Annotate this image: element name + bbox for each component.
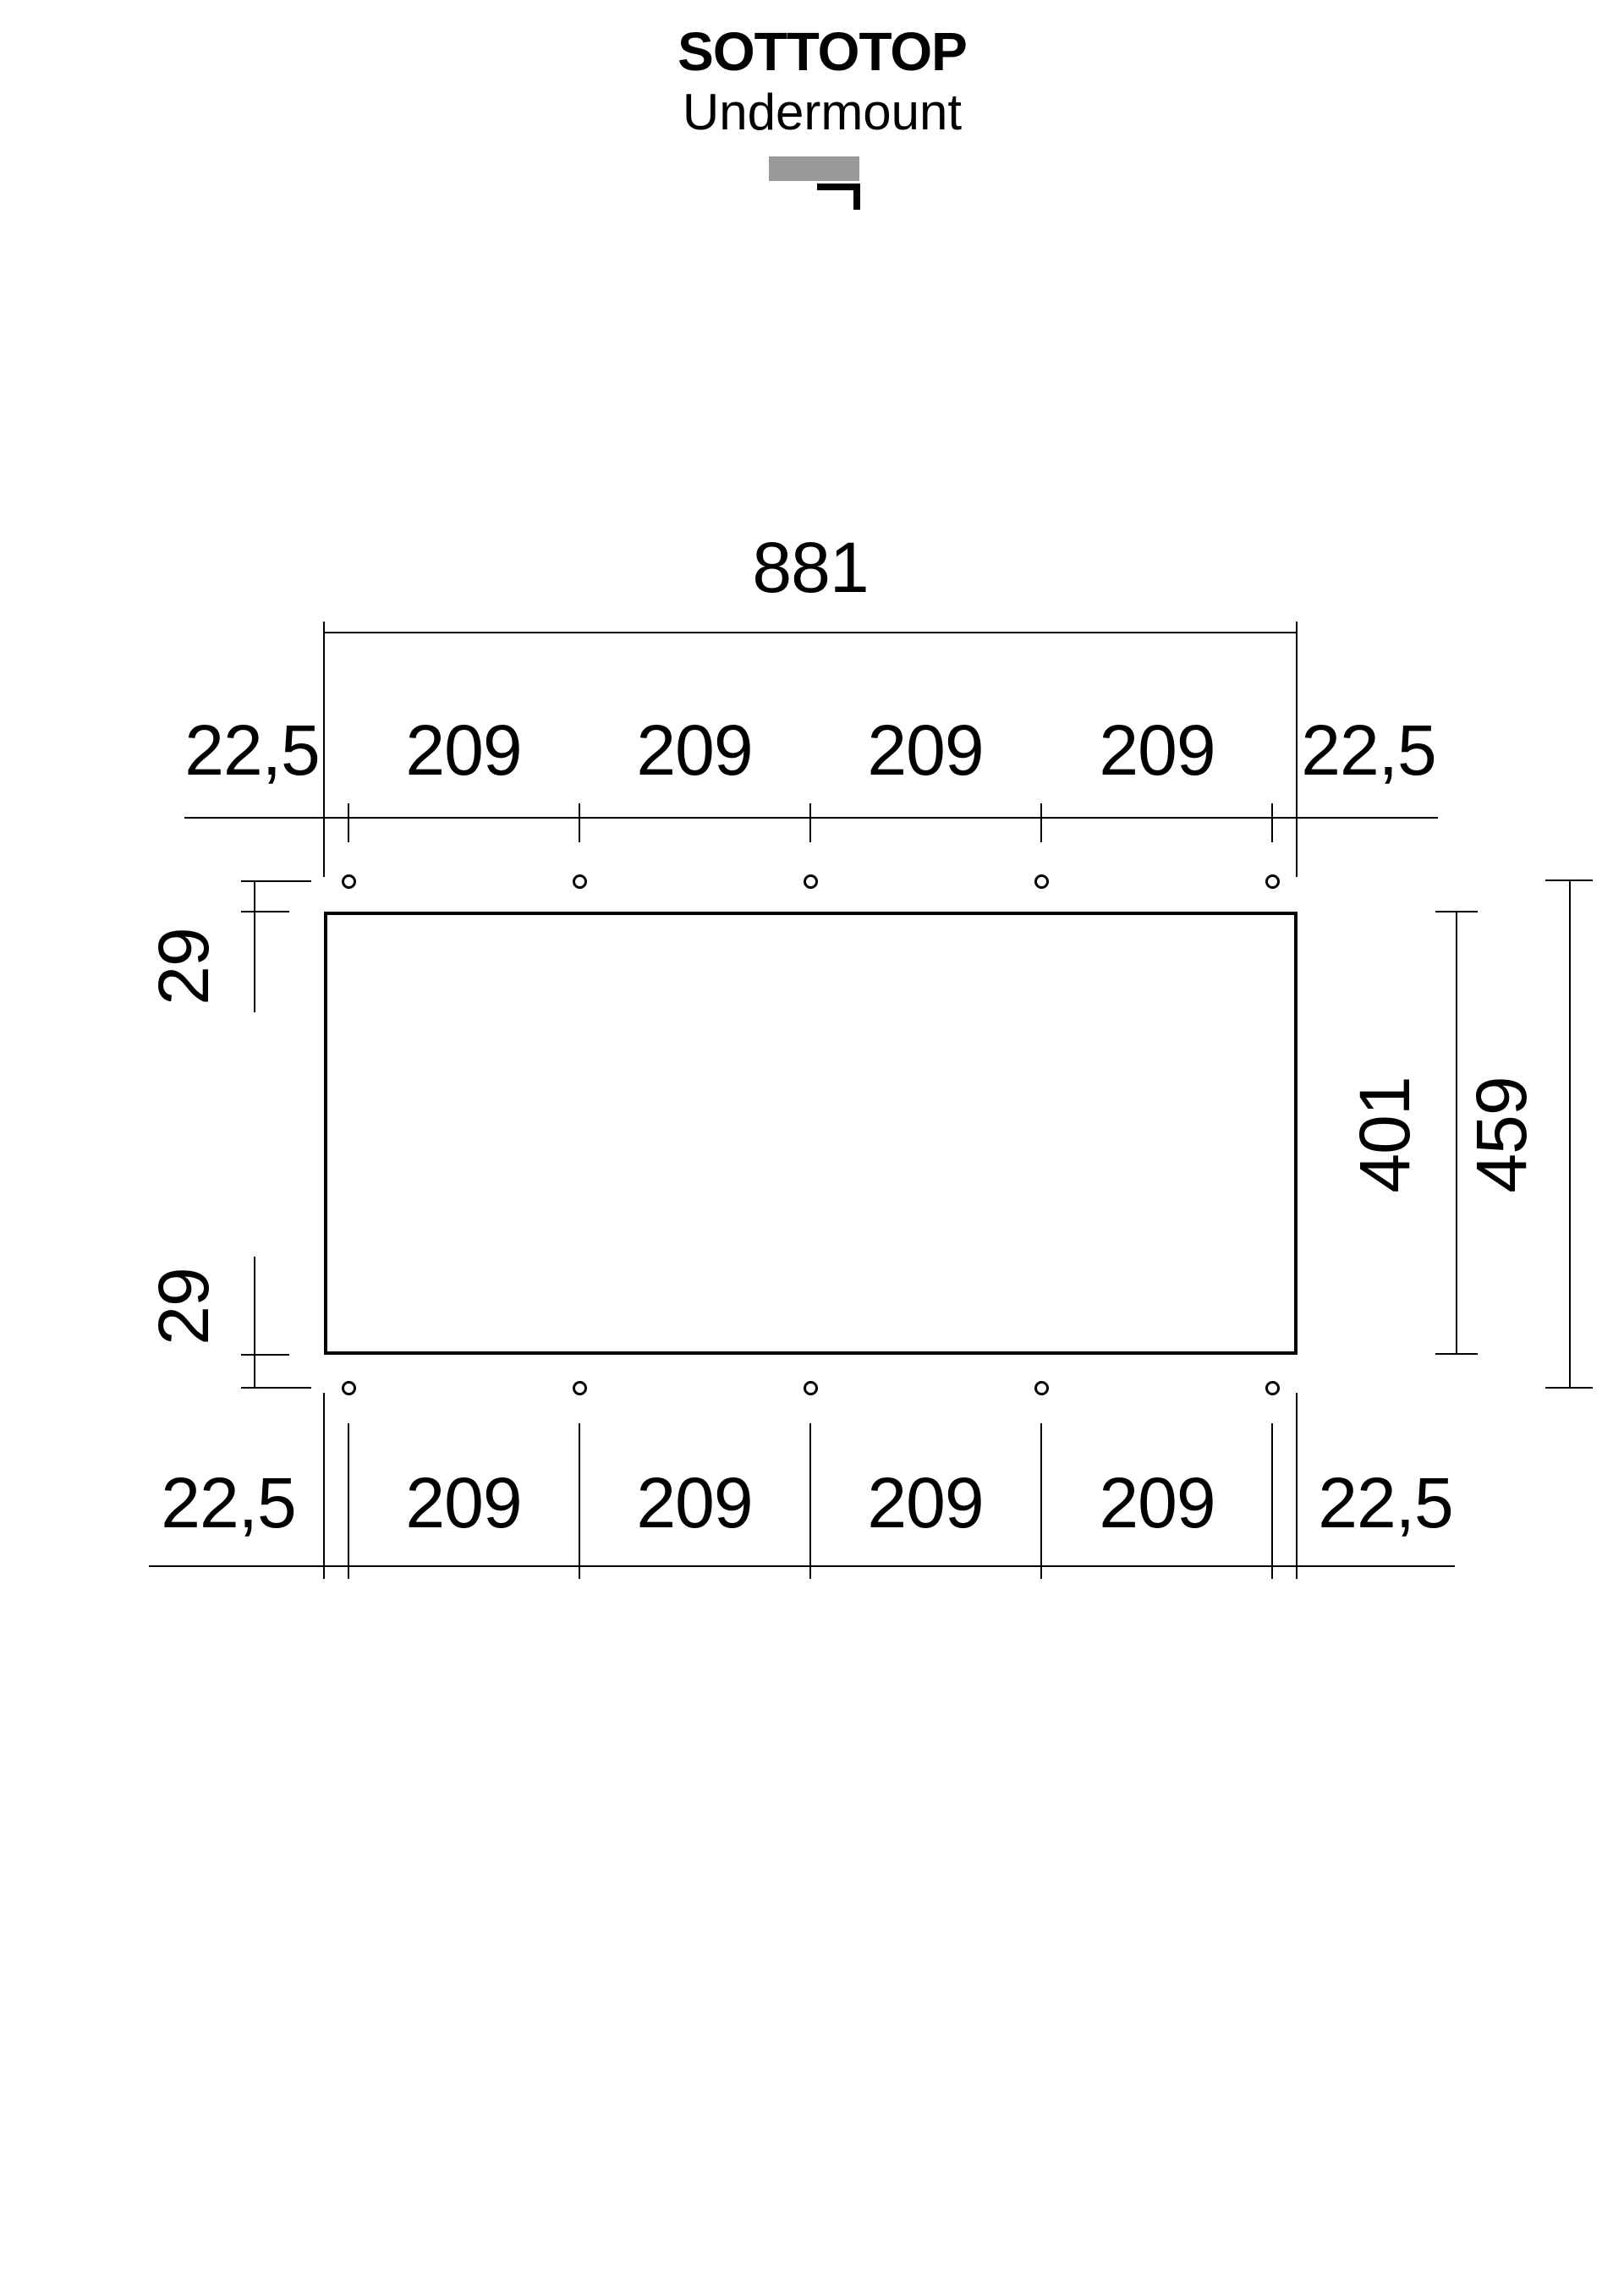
tick-left-top-hole-row xyxy=(241,880,311,882)
dim-line-overall-width xyxy=(324,632,1298,633)
drill-hole-top-2 xyxy=(573,874,587,889)
tick-left-bottom-hole-row xyxy=(241,1387,311,1389)
page-subtitle: Undermount xyxy=(399,85,1245,140)
dim-top-spacing-label-5: 22,5 xyxy=(1242,712,1495,788)
drill-hole-top-4 xyxy=(1034,874,1049,889)
drill-hole-bottom-3 xyxy=(804,1381,818,1395)
tick-cutout-height-bottom xyxy=(1435,1353,1478,1355)
drill-hole-top-5 xyxy=(1265,874,1280,889)
dim-bottom-spacing-label-1: 209 xyxy=(337,1465,590,1541)
tick-left-top-cutout-edge xyxy=(241,911,289,912)
dim-hole-row-span-label: 459 xyxy=(1463,1050,1539,1219)
tick-top-hole-4 xyxy=(1040,803,1042,842)
undermount-icon-sink-rim-vertical xyxy=(853,184,860,210)
dim-bottom-spacing-label-3: 209 xyxy=(798,1465,1052,1541)
tick-top-hole-2 xyxy=(579,803,580,842)
dim-bottom-spacing-label-5: 22,5 xyxy=(1259,1465,1512,1541)
tick-cutout-height-top xyxy=(1435,911,1478,912)
dim-line-left-bottom-offset xyxy=(254,1257,255,1389)
dim-line-left-top-offset xyxy=(254,880,255,1012)
dim-top-spacing-label-3: 209 xyxy=(798,712,1052,788)
tick-top-hole-5 xyxy=(1271,803,1273,842)
drill-hole-bottom-1 xyxy=(342,1381,356,1395)
dim-left-top-offset-label: 29 xyxy=(145,882,222,1051)
drill-hole-bottom-4 xyxy=(1034,1381,1049,1395)
dim-bottom-spacing-label-2: 209 xyxy=(568,1465,821,1541)
tick-top-hole-1 xyxy=(348,803,349,842)
dim-line-cutout-height xyxy=(1456,912,1457,1355)
drawing-sheet: SOTTOTOP Undermount 881 22,5 209 209 209… xyxy=(0,0,1624,2296)
dim-top-spacing-label-2: 209 xyxy=(568,712,821,788)
tick-left-bottom-cutout-edge xyxy=(241,1354,289,1356)
cutout-rectangle xyxy=(324,912,1298,1355)
undermount-icon-countertop xyxy=(769,156,859,181)
dim-bottom-spacing-label-4: 209 xyxy=(1030,1465,1284,1541)
tick-hole-row-span-bottom xyxy=(1545,1387,1593,1389)
drill-hole-bottom-5 xyxy=(1265,1381,1280,1395)
drill-hole-bottom-2 xyxy=(573,1381,587,1395)
dim-bottom-spacing-label-0: 22,5 xyxy=(101,1465,355,1541)
dim-left-bottom-offset-label: 29 xyxy=(145,1222,222,1391)
drill-hole-top-3 xyxy=(804,874,818,889)
dim-overall-width-label: 881 xyxy=(683,529,937,606)
dim-top-spacing-label-1: 209 xyxy=(337,712,590,788)
page-title: SOTTOTOP xyxy=(399,19,1245,85)
dim-cutout-height-label: 401 xyxy=(1347,1050,1423,1219)
dim-line-bottom-spacing xyxy=(149,1565,1455,1567)
dim-line-hole-row-span xyxy=(1569,880,1571,1388)
dim-line-top-spacing xyxy=(184,817,1438,819)
drill-hole-top-1 xyxy=(342,874,356,889)
tick-hole-row-span-top xyxy=(1545,879,1593,881)
tick-top-hole-3 xyxy=(809,803,811,842)
